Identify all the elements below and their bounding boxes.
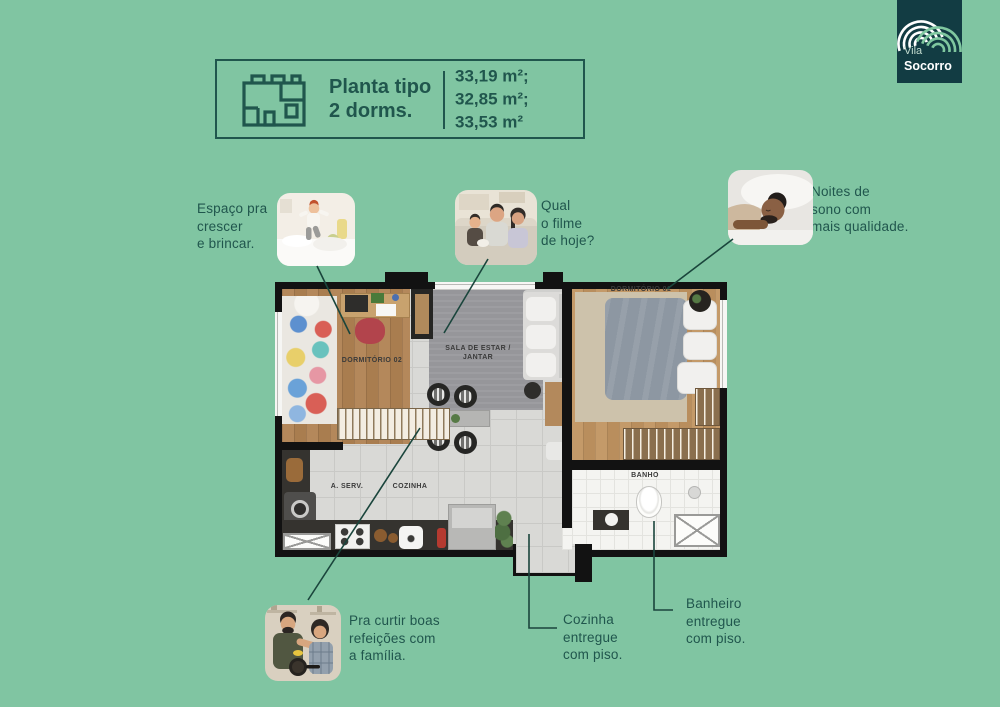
picture-frame — [371, 293, 384, 303]
couch-cushion — [525, 324, 557, 350]
table-plant — [451, 414, 460, 423]
wall — [275, 550, 513, 557]
wall — [275, 442, 343, 450]
kitchen-sink — [399, 526, 423, 549]
banho-door-opening — [562, 528, 572, 550]
room-label-dormitorio-02: DORMITÓRIO 02 — [342, 356, 402, 365]
header-card: Planta tipo 2 dorms. 33,19 m²; 32,85 m²;… — [215, 59, 585, 139]
logo-name-socorro: Socorro — [904, 59, 952, 73]
room-label-cozinha: COZINHA — [393, 482, 428, 491]
fridge-top — [452, 508, 492, 528]
laundry-tank — [283, 533, 331, 550]
header-divider — [443, 71, 445, 129]
desk-item — [392, 294, 399, 301]
fire-extinguisher — [437, 528, 446, 548]
family-watching-movie-photo — [455, 190, 537, 265]
cutting-board — [286, 458, 303, 482]
wall — [562, 460, 727, 470]
header-areas: 33,19 m²; 32,85 m²; 33,53 m² — [455, 65, 529, 134]
open-book — [376, 304, 396, 316]
family-couch-scene — [455, 190, 537, 265]
kitchen-plant — [495, 510, 513, 548]
wall — [575, 544, 592, 582]
room-label-dormitorio-01: DORMITÓRIO 01 — [611, 285, 671, 294]
wardrobe-side-dormitorio-01 — [695, 388, 720, 426]
bed-dormitorio-02 — [282, 296, 337, 424]
laptop — [345, 295, 368, 312]
logo-name-vila: Vila — [904, 45, 922, 57]
child-jumping-on-bed-photo — [277, 193, 355, 266]
header-title: Planta tipo 2 dorms. — [329, 75, 431, 123]
bed-dormitorio-01 — [605, 298, 687, 400]
wardrobe-dormitorio-02 — [337, 408, 450, 440]
couple-cooking-photo — [265, 605, 341, 681]
wall-column — [385, 272, 428, 284]
wardrobe-dormitorio-01 — [623, 428, 720, 460]
shower-tray — [674, 514, 720, 547]
shower-head — [688, 486, 701, 499]
bowl — [374, 529, 387, 542]
window — [275, 312, 282, 416]
man-sleeping-scene — [728, 170, 813, 245]
floor-plan: DORMITÓRIO 02 SALA DE ESTAR / JANTAR DOR… — [275, 282, 727, 557]
callout-banheiro-text: Banheiro entregue com piso. — [686, 595, 746, 648]
couple-cooking-scene — [265, 605, 341, 681]
bathroom-sink — [605, 513, 618, 526]
man-sleeping-photo — [728, 170, 813, 245]
wall — [562, 282, 572, 528]
callout-refeicoes-text: Pra curtir boas refeições com a família. — [349, 612, 440, 665]
bed-pillow — [683, 332, 717, 360]
wall — [577, 550, 720, 557]
callout-cozinha-text: Cozinha entregue com piso. — [563, 611, 623, 664]
dining-chair — [454, 385, 477, 408]
marketing-page: Planta tipo 2 dorms. 33,19 m²; 32,85 m²;… — [0, 0, 1000, 707]
callout-espaco-text: Espaço pra crescer e brincar. — [197, 200, 267, 253]
nightstand — [689, 290, 711, 312]
toilet — [636, 486, 662, 518]
bowl — [388, 533, 398, 543]
child-jumping-scene — [277, 193, 355, 266]
dining-chair — [454, 431, 477, 454]
dining-chair — [427, 383, 450, 406]
red-chair — [355, 318, 385, 344]
window — [720, 300, 727, 388]
couch-cushion — [525, 296, 557, 322]
couch-cushion — [525, 352, 557, 378]
brand-logo: Vila Socorro — [897, 0, 962, 83]
callout-filme-text: Qual o filme de hoje? — [541, 197, 594, 250]
side-table — [524, 382, 541, 399]
room-label-banho: BANHO — [631, 471, 659, 480]
washer-door — [291, 500, 309, 518]
callout-noites-text: Noites de sono com mais qualidade. — [811, 183, 909, 236]
tv-cabinet-shelf — [415, 294, 429, 334]
wall-column — [543, 272, 563, 284]
window — [435, 282, 535, 289]
floorplan-icon — [241, 72, 307, 128]
stove — [335, 524, 370, 549]
room-label-area-servico: A. SERV. — [331, 482, 363, 491]
room-label-sala: SALA DE ESTAR / JANTAR — [445, 344, 511, 362]
